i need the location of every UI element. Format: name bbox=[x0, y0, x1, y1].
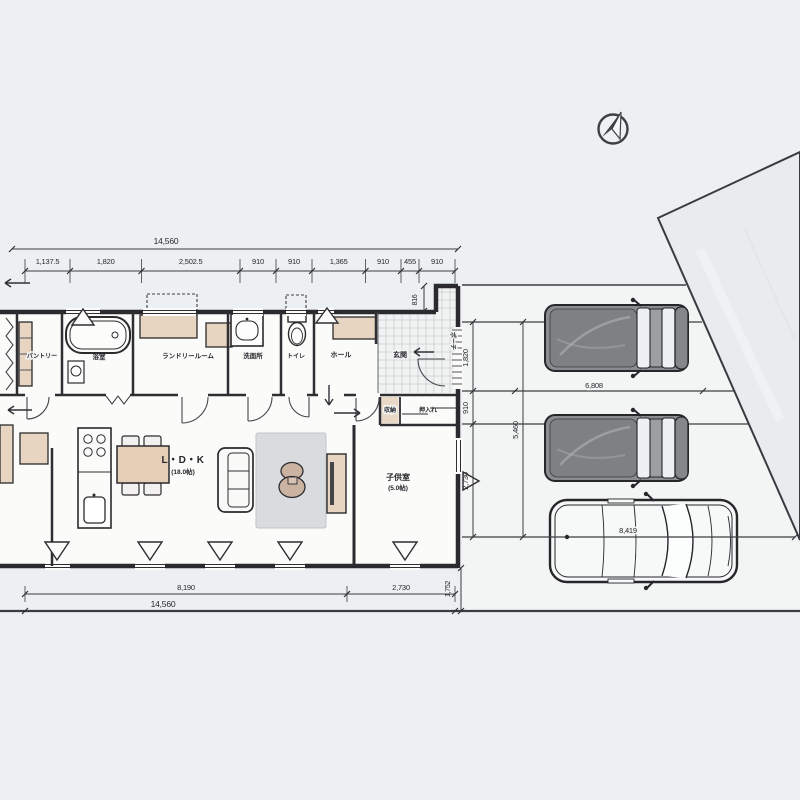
dim-seg2: 1,820 bbox=[97, 257, 115, 266]
dim-lower-right-text: 1,752 bbox=[445, 581, 452, 597]
label-ldk: L・D・K bbox=[161, 455, 204, 466]
label-washroom: 洗面所 bbox=[243, 351, 263, 360]
dim-car-length-text: 8,419 bbox=[619, 526, 637, 535]
dim-bottom-seg2: 2,730 bbox=[392, 583, 410, 592]
shoe-cabinet bbox=[333, 317, 376, 339]
dim-seg6: 1,365 bbox=[330, 257, 348, 266]
label-entrance: 玄関 bbox=[393, 350, 407, 359]
van-2 bbox=[545, 408, 688, 488]
dim-bottom-seg1: 8,190 bbox=[177, 583, 195, 592]
label-laundry: ランドリールーム bbox=[162, 352, 214, 360]
dim-right-total: 5,460 bbox=[511, 421, 520, 439]
dim-seg7: 910 bbox=[377, 257, 389, 266]
refrigerator bbox=[20, 433, 48, 464]
floor-plan-canvas: パントリー 浴室 ランドリールーム 洗面所 トイレ ホール 玄関 ポーチ 収納 … bbox=[0, 0, 800, 800]
left-cabinet bbox=[0, 425, 13, 483]
label-pantry: パントリー bbox=[27, 352, 57, 360]
label-porch: ポーチ bbox=[449, 332, 457, 350]
tv-board bbox=[327, 454, 346, 513]
dim-seg5: 910 bbox=[288, 257, 300, 266]
dim-seg3: 2,502.5 bbox=[179, 257, 203, 266]
washing-machine bbox=[68, 361, 84, 383]
dim-right-seg2: 910 bbox=[461, 402, 470, 414]
label-closet: 収納 bbox=[384, 406, 396, 414]
floor-plan-drawing: パントリー 浴室 ランドリールーム 洗面所 トイレ ホール 玄関 ポーチ 収納 … bbox=[0, 0, 800, 800]
label-kids-room: 子供室 bbox=[386, 472, 410, 482]
dim-right-seg3: 2,730 bbox=[461, 472, 470, 490]
van-1 bbox=[545, 298, 688, 378]
dim-bottom-total-text: 14,560 bbox=[151, 599, 176, 609]
car-outline bbox=[550, 492, 737, 590]
kitchen-island bbox=[78, 428, 111, 528]
label-toilet: トイレ bbox=[287, 353, 305, 360]
dim-top-total-text: 14,560 bbox=[154, 236, 179, 246]
dim-seg9: 910 bbox=[431, 257, 443, 266]
dim-seg1: 1,137.5 bbox=[36, 257, 60, 266]
label-ldk-size: (18.0帖) bbox=[171, 467, 194, 476]
vanity-sink bbox=[231, 314, 263, 346]
dim-seg4: 910 bbox=[252, 257, 264, 266]
dim-porch-depth-text: 816 bbox=[412, 294, 419, 305]
living-rug bbox=[256, 433, 326, 528]
label-oshiire: 押入れ bbox=[419, 406, 437, 414]
toilet-fixture bbox=[288, 313, 306, 346]
dim-van-length-text: 6,808 bbox=[585, 381, 603, 390]
dim-seg8: 455 bbox=[404, 257, 416, 266]
sofa bbox=[218, 448, 253, 512]
dim-right-seg1: 1,820 bbox=[461, 349, 470, 367]
label-hall: ホール bbox=[331, 351, 352, 359]
laundry-counter bbox=[140, 315, 197, 338]
label-bath: 浴室 bbox=[93, 352, 107, 361]
label-kids-size: (5.0帖) bbox=[388, 483, 408, 492]
